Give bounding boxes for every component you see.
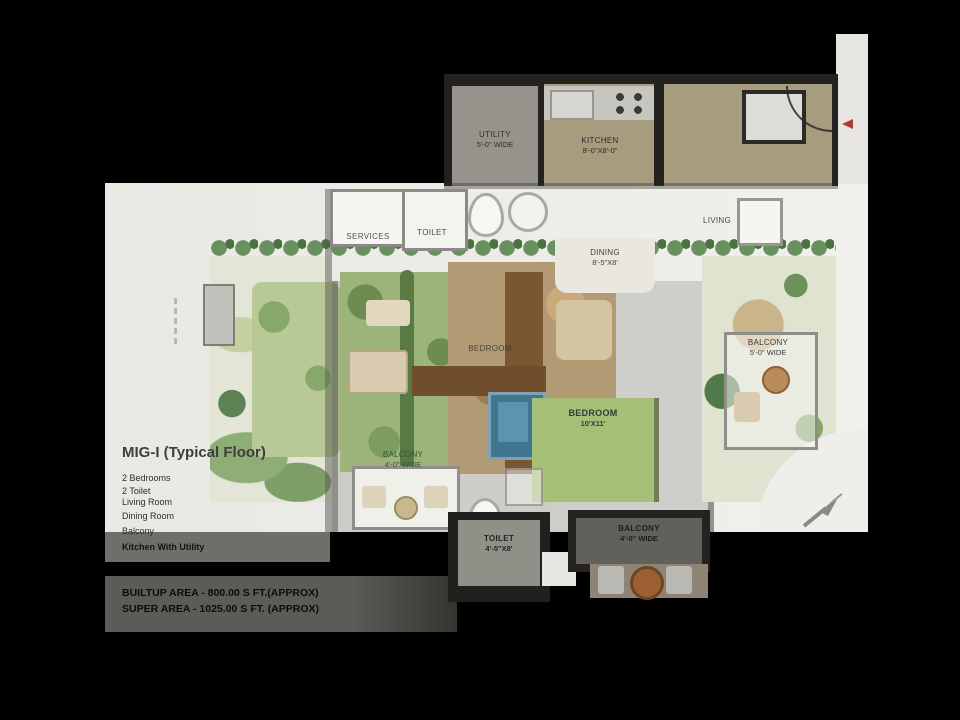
room-label-toilet-bottom: TOILET 4'-5"X8' bbox=[458, 534, 540, 553]
room-label-bedroom-lower: BEDROOM 10'X11' bbox=[534, 408, 652, 429]
letterbox-left bbox=[0, 0, 105, 720]
room-label-dining: DINING 8'-5"X8' bbox=[560, 248, 650, 267]
room-label-services: SERVICES bbox=[346, 232, 390, 244]
outbuilding bbox=[203, 284, 235, 346]
room-label-kitchen: KITCHEN 8'-0"X8'-0" bbox=[548, 136, 652, 155]
builtup-area-text: BUILTUP AREA - 800.00 S FT.(APPROX) bbox=[122, 587, 452, 599]
room-services: SERVICES bbox=[330, 189, 406, 247]
room-label-utility: UTILITY 5'-0" WIDE bbox=[452, 130, 538, 149]
balcony-chair-icon bbox=[734, 392, 760, 422]
swimming-pool-inner bbox=[498, 402, 528, 442]
balcony-chair-icon bbox=[362, 486, 386, 508]
feature-item: 2 Toilet bbox=[122, 486, 322, 496]
feature-item: 2 Bedrooms bbox=[122, 473, 322, 483]
room-label-balcony-right: BALCONY 5'-0" WIDE bbox=[724, 338, 812, 357]
shower-square-icon bbox=[505, 468, 543, 506]
balcony-table-icon bbox=[762, 366, 790, 394]
feature-item: Kitchen With Utility bbox=[122, 542, 322, 552]
siteplan-right-strip bbox=[836, 34, 868, 184]
kitchen-hob-icon bbox=[612, 90, 648, 116]
balcony-table-icon bbox=[394, 496, 418, 520]
patio-patch bbox=[556, 300, 612, 360]
patio-chair-icon bbox=[666, 566, 692, 594]
room-label-balcony-bottom: BALCONY 4'-0" WIDE bbox=[576, 524, 702, 543]
letterbox-right bbox=[868, 0, 960, 720]
balcony-chair-icon bbox=[424, 486, 448, 508]
patio-table-icon bbox=[630, 566, 664, 600]
room-label-toilet-top: TOILET bbox=[402, 228, 462, 238]
basin-icon bbox=[508, 192, 548, 232]
room-toilet-top bbox=[402, 189, 468, 251]
table-icon bbox=[366, 300, 410, 326]
patio-chair-icon bbox=[598, 566, 624, 594]
room-label-living: LIVING bbox=[685, 216, 749, 226]
video-frame: SERVICES UTILITY 5'-0" WIDE KITCHEN 8'-0… bbox=[0, 0, 960, 720]
road-dimension-mark bbox=[174, 298, 177, 348]
feature-item: Living Room bbox=[122, 497, 322, 507]
feature-item: Balcony bbox=[122, 526, 322, 536]
toilet-bowl-icon bbox=[468, 193, 504, 237]
super-area-text: SUPER AREA - 1025.00 S FT. (APPROX) bbox=[122, 603, 452, 615]
room-label-bedroom-upper: BEDROOM bbox=[448, 344, 532, 354]
kitchen-sink-icon bbox=[550, 90, 594, 120]
sofa-icon bbox=[348, 350, 408, 394]
feature-item: Dining Room bbox=[122, 511, 322, 521]
plan-title: MIG-I (Typical Floor) bbox=[122, 444, 382, 461]
north-arrow-icon bbox=[798, 492, 846, 532]
plan-band-wall bbox=[444, 183, 838, 189]
